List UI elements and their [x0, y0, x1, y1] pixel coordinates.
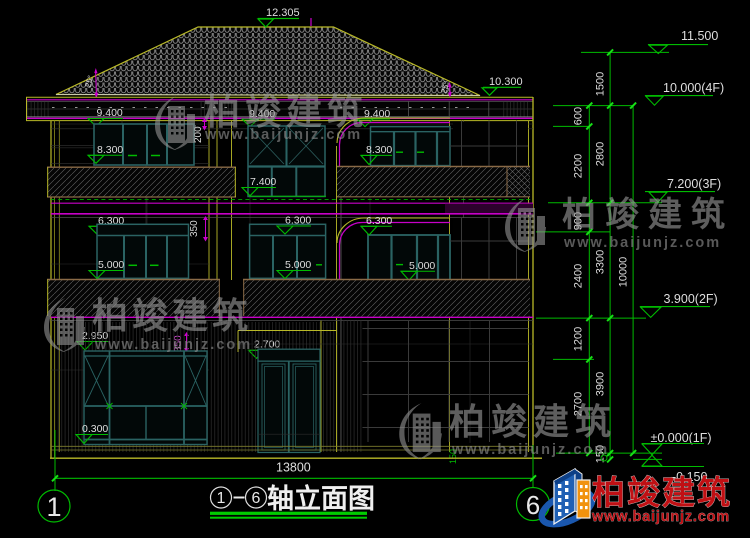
- svg-text:5.000: 5.000: [285, 259, 311, 271]
- svg-text:柏竣建筑: 柏竣建筑: [562, 195, 734, 234]
- svg-text:2400: 2400: [573, 264, 585, 288]
- svg-text:9.400: 9.400: [97, 107, 123, 119]
- svg-text:1: 1: [217, 490, 226, 507]
- svg-text:3900: 3900: [595, 372, 607, 396]
- svg-text:12.305: 12.305: [266, 7, 300, 19]
- svg-text:www.baijunjz.com: www.baijunjz.com: [563, 235, 721, 251]
- svg-text:600: 600: [573, 107, 585, 125]
- svg-text:10.000(4F): 10.000(4F): [663, 81, 724, 95]
- svg-text:7.200(3F): 7.200(3F): [667, 177, 721, 191]
- svg-text:0.300: 0.300: [82, 423, 108, 435]
- svg-text:7.400: 7.400: [250, 176, 276, 188]
- svg-text:www.baijunjz.com: www.baijunjz.com: [591, 509, 730, 525]
- svg-text:柏竣建筑: 柏竣建筑: [204, 91, 368, 132]
- svg-text:柏竣建筑: 柏竣建筑: [592, 474, 732, 511]
- svg-text:www.baijunjz.com: www.baijunjz.com: [204, 127, 362, 143]
- svg-text:8.300: 8.300: [97, 144, 123, 156]
- svg-text:www.baijunjz.com: www.baijunjz.com: [94, 337, 252, 353]
- svg-text:13800: 13800: [276, 461, 311, 475]
- svg-text:5.000: 5.000: [409, 260, 435, 272]
- svg-text:6.300: 6.300: [285, 215, 311, 227]
- svg-text:5.000: 5.000: [98, 259, 124, 271]
- svg-text:11.500: 11.500: [681, 29, 718, 43]
- svg-text:6.300: 6.300: [366, 215, 392, 227]
- svg-text:±0.000(1F): ±0.000(1F): [651, 431, 712, 445]
- svg-text:1: 1: [46, 492, 61, 522]
- svg-text:www.baijunjz.com: www.baijunjz.com: [451, 442, 609, 458]
- svg-text:轴立面图: 轴立面图: [267, 483, 375, 514]
- svg-text:柏竣建筑: 柏竣建筑: [449, 401, 617, 442]
- svg-text:10.300: 10.300: [489, 76, 523, 88]
- svg-text:8.300: 8.300: [366, 144, 392, 156]
- svg-text:3300: 3300: [595, 250, 607, 274]
- svg-text:350: 350: [189, 220, 200, 237]
- svg-text:2200: 2200: [573, 154, 585, 178]
- svg-text:10000: 10000: [618, 257, 630, 288]
- svg-text:6: 6: [252, 490, 261, 507]
- svg-text:6: 6: [526, 490, 540, 520]
- svg-text:柏竣建筑: 柏竣建筑: [92, 295, 252, 336]
- svg-text:1200: 1200: [573, 327, 585, 351]
- svg-text:1500: 1500: [595, 72, 607, 96]
- svg-text:2800: 2800: [595, 142, 607, 166]
- svg-text:3.900(2F): 3.900(2F): [664, 292, 718, 306]
